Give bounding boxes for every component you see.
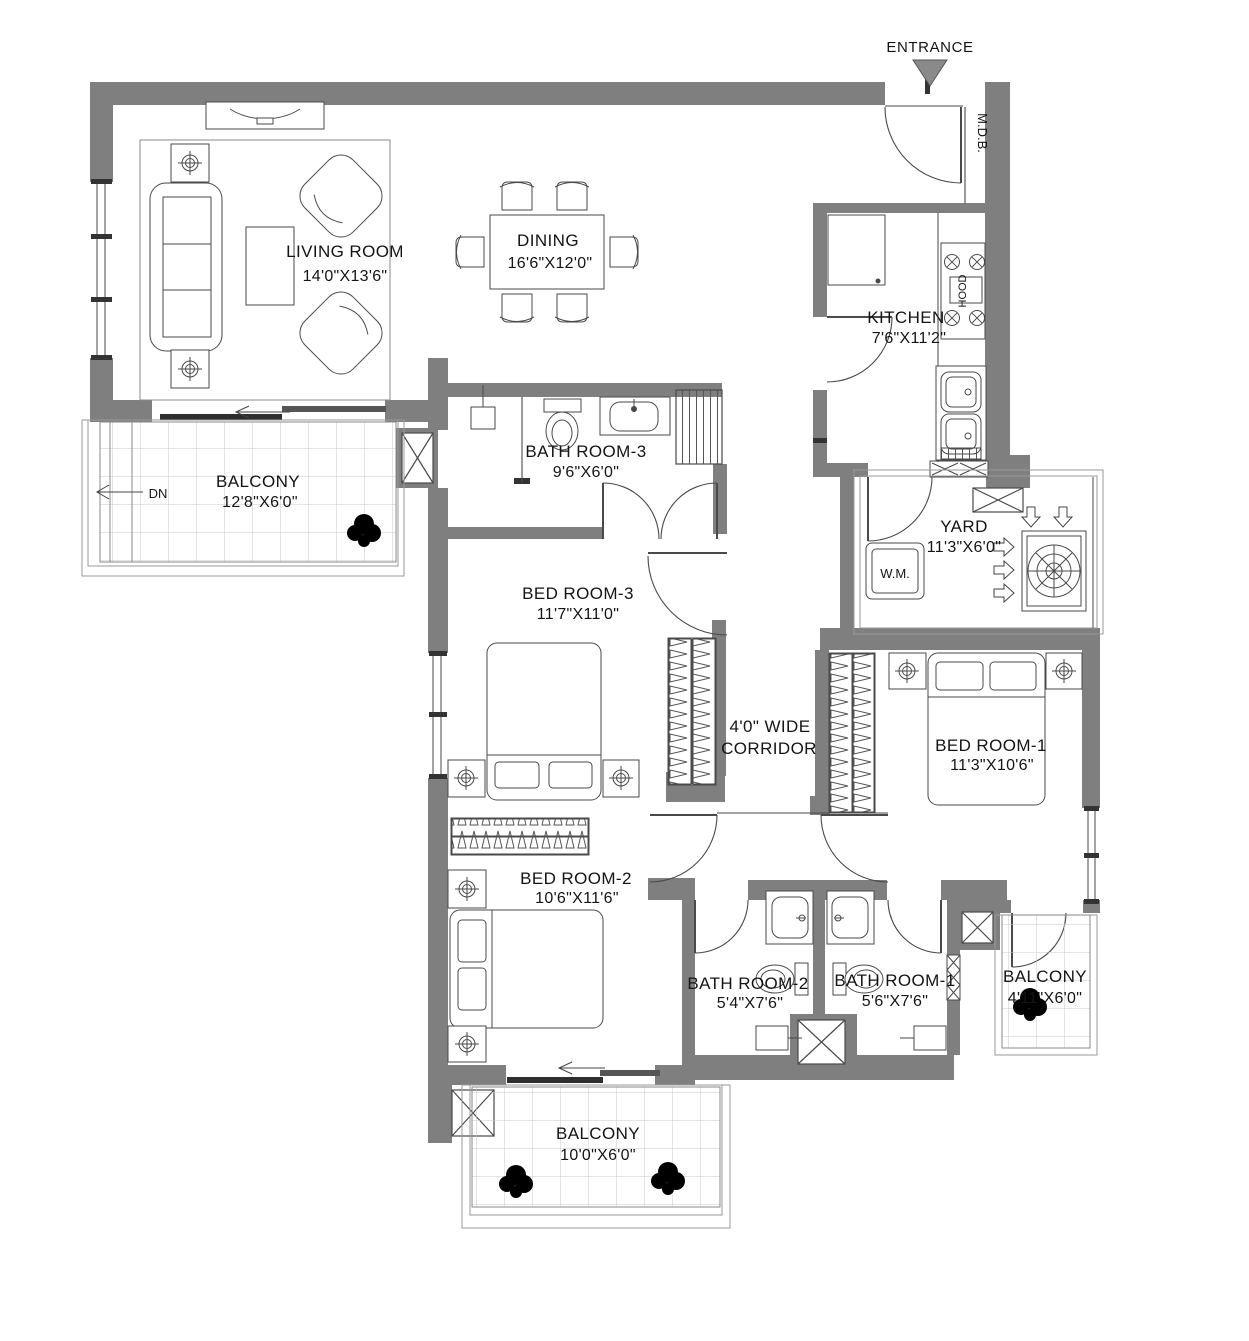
balcony-bottom-name: BALCONY	[556, 1124, 640, 1143]
kitchen-name: KITCHEN	[867, 308, 944, 327]
nightstand	[448, 760, 485, 797]
corridor-name: 4'0" WIDE	[730, 717, 811, 736]
wardrobe	[829, 653, 875, 813]
bedroom3-name: BED ROOM-3	[522, 584, 634, 603]
wardrobe	[451, 818, 589, 855]
balcony-right-name: BALCONY	[1003, 967, 1087, 986]
bedroom1-name: BED ROOM-1	[935, 736, 1047, 755]
balcony-bottom	[462, 1062, 730, 1228]
nightstand	[603, 760, 639, 797]
dining-size: 16'6"X12'0"	[508, 255, 593, 272]
dining-name: DINING	[517, 231, 579, 250]
nightstand	[448, 870, 486, 908]
balcony-top-name: BALCONY	[216, 472, 300, 491]
hood-label: HOOD	[957, 274, 969, 307]
bathroom3-size: 9'6"X6'0"	[553, 464, 619, 481]
wardrobe	[668, 638, 716, 785]
kitchen-sink	[936, 366, 986, 460]
bedroom3-size: 11'7"X11'0"	[537, 606, 619, 623]
wash-basin	[600, 397, 670, 435]
bedroom1-size: 11'3"X10'6"	[950, 757, 1034, 774]
nightstand	[1046, 653, 1082, 689]
dining-chair	[500, 294, 534, 322]
fridge	[828, 215, 885, 285]
yard-name: YARD	[940, 517, 988, 536]
wash-basin	[766, 891, 813, 944]
nightstand	[889, 653, 926, 689]
yard-louver-window	[930, 461, 988, 477]
bed	[487, 643, 601, 800]
living-room-name: LIVING ROOM	[286, 242, 404, 261]
nightstand	[448, 1026, 486, 1062]
corridor-size: CORRIDOR	[721, 739, 817, 758]
dining-chair	[610, 235, 638, 269]
balcony-top-size: 12'8"X6'0"	[222, 494, 298, 511]
dining-chair	[456, 235, 484, 269]
living-room-size: 14'0"X13'6"	[303, 268, 388, 285]
yard-duct	[973, 488, 1023, 512]
bedroom2-furniture	[448, 818, 603, 1062]
floor-plan-canvas: ENTRANCE M.D.B. LIVING ROOM 14'0"X13'6" …	[0, 0, 1249, 1341]
lift-shaft	[962, 912, 993, 943]
dining-chair	[555, 294, 589, 322]
side-table-top	[171, 144, 209, 182]
dn-label: DN	[149, 486, 168, 501]
bath3-duct	[676, 390, 722, 464]
bathroom2-name: BATH ROOM-2	[687, 974, 808, 993]
entrance-label: ENTRANCE	[886, 39, 973, 56]
column-shaft	[402, 433, 433, 483]
tv-console	[206, 102, 324, 129]
bedroom2-name: BED ROOM-2	[520, 869, 632, 888]
sofa	[150, 183, 222, 351]
wm-label: W.M.	[880, 566, 910, 581]
dining-table	[490, 215, 604, 289]
bathroom3-name: BATH ROOM-3	[525, 442, 646, 461]
bedroom1-furniture	[829, 653, 1082, 813]
bedroom3-furniture	[448, 638, 716, 800]
bathroom1-name: BATH ROOM-1	[834, 971, 955, 990]
yard-size: 11'3"X6'0"	[927, 539, 1001, 556]
bathroom1-size: 5'6"X7'6"	[862, 993, 928, 1010]
dining-chair	[555, 182, 589, 210]
ac-condenser	[1022, 531, 1086, 611]
balcony-bottom-size: 10'0"X6'0"	[560, 1147, 636, 1164]
bathroom2-size: 5'4"X7'6"	[717, 995, 783, 1012]
balcony-right-size: 4'11"X6'0"	[1008, 990, 1082, 1007]
side-table-bottom	[171, 350, 209, 388]
floor-plan-drawing: ENTRANCE M.D.B. LIVING ROOM 14'0"X13'6" …	[0, 0, 1249, 1341]
bed	[450, 910, 603, 1028]
bedroom2-size: 10'6"X11'6"	[535, 890, 619, 907]
mdb-label: M.D.B.	[975, 113, 990, 153]
wash-basin	[827, 891, 874, 944]
bed	[928, 653, 1045, 805]
kitchen-size: 7'6"X11'2"	[872, 330, 946, 347]
dining-chair	[500, 182, 534, 210]
coffee-table	[246, 227, 294, 305]
bath-shaft	[798, 1020, 845, 1064]
